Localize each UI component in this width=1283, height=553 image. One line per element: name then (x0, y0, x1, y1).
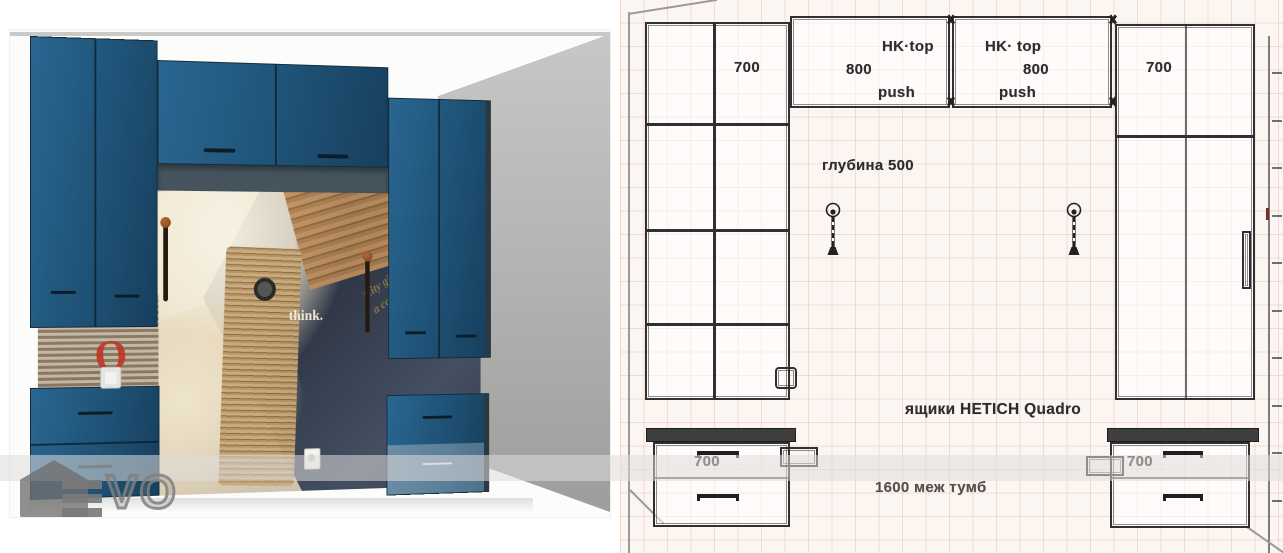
wf-base-right-top (1107, 428, 1259, 442)
wall-tick (1272, 500, 1282, 502)
render-view: O City gives New Year a colorful welcome… (10, 30, 610, 517)
note-push-right: push (999, 84, 1036, 101)
door-handle (456, 335, 477, 338)
screenshot-root: O City gives New Year a colorful welcome… (0, 0, 1283, 553)
drawer-handle (78, 411, 113, 415)
door-handle (51, 291, 76, 294)
lamp-icon (825, 202, 841, 260)
drawer-handle (423, 415, 453, 418)
wall-tick (1272, 452, 1282, 454)
left-wall-corner-line (628, 12, 630, 553)
door-handle (115, 295, 140, 298)
door-handle (405, 331, 426, 334)
hinge-mark (1109, 15, 1117, 25)
lamp-icon (1066, 202, 1082, 260)
wall-tick (1272, 310, 1282, 312)
evo-letter-e (62, 480, 102, 517)
wf-shelf (645, 123, 790, 126)
wall-mark (1266, 208, 1269, 220)
wall-tick (1272, 215, 1282, 217)
dim-bridge-right: 800 (1023, 61, 1049, 78)
door-gap (275, 65, 277, 165)
note-hk-top-right: HK· top (985, 38, 1041, 55)
note-hk-top-left: HK·top (882, 38, 934, 55)
door-handle (204, 148, 236, 152)
mural-door-handle-left (163, 225, 168, 301)
evo-letters-vo: VO (106, 464, 178, 517)
left-upper-wardrobe (30, 36, 158, 328)
ceiling-corner-line (628, 0, 717, 15)
bridge-soffit (158, 164, 389, 193)
wf-light-switch (775, 367, 797, 389)
door-gap (94, 39, 96, 326)
light-switch (100, 367, 121, 389)
floor-corner-line-right (1246, 526, 1283, 553)
right-upper-wardrobe (388, 98, 491, 359)
wf-base-left-top (646, 428, 796, 442)
wall-tick (1272, 72, 1282, 74)
mural-door-handle-right (365, 259, 369, 333)
drawer-front-light (387, 443, 484, 495)
wf-socket-left (780, 447, 818, 467)
wf-drawer-split (653, 477, 790, 479)
dim-base-left: 700 (694, 453, 720, 470)
wf-drawer-handle (1163, 451, 1203, 455)
evo-logo: VO (16, 458, 216, 517)
drawer-gap (31, 441, 159, 446)
note-push-left: push (878, 84, 915, 101)
ceiling-edge (10, 32, 610, 36)
mural-badge-detail (253, 278, 275, 301)
wall-tick (1272, 405, 1282, 407)
door-gap (438, 100, 440, 358)
wardrobe-unit-3d: O City gives New Year a colorful welcome… (30, 36, 493, 506)
door-handle (318, 154, 349, 158)
dim-base-right: 700 (1127, 453, 1153, 470)
wf-hanging-rod (1117, 135, 1253, 138)
mural-think-text: think. (289, 308, 323, 325)
power-socket (304, 448, 320, 470)
wall-tick (1272, 120, 1282, 122)
wall-tick (1272, 262, 1282, 264)
wf-drawer-handle (1163, 494, 1203, 498)
wf-drawer-split (1110, 477, 1250, 479)
wf-socket-right (1086, 456, 1124, 476)
wf-shelf (645, 323, 790, 326)
right-wall-corner-line (1268, 36, 1270, 553)
wall-tick (1272, 167, 1282, 169)
bridge-top-cabinet (158, 60, 389, 168)
dim-left-column: 700 (720, 59, 774, 76)
wall-tick (1272, 357, 1282, 359)
wf-right-column-divider (1185, 24, 1187, 400)
wf-left-column-divider (713, 22, 716, 400)
note-depth: глубина 500 (822, 157, 914, 174)
note-between-cabinets: 1600 меж тумб (875, 479, 987, 496)
wf-shelf (645, 229, 790, 232)
wf-drawer-handle (697, 494, 739, 498)
dim-right-column: 700 (1132, 59, 1186, 76)
wf-left-column (645, 22, 790, 400)
note-drawer-system: ящики HETICH Quadro (905, 401, 1081, 419)
dim-bridge-left: 800 (846, 61, 872, 78)
right-drawer-chest (386, 393, 489, 495)
wf-door-handle (1242, 231, 1251, 289)
drawing-view: 700 HK·top 800 push HK· top 800 push 700… (620, 0, 1283, 553)
